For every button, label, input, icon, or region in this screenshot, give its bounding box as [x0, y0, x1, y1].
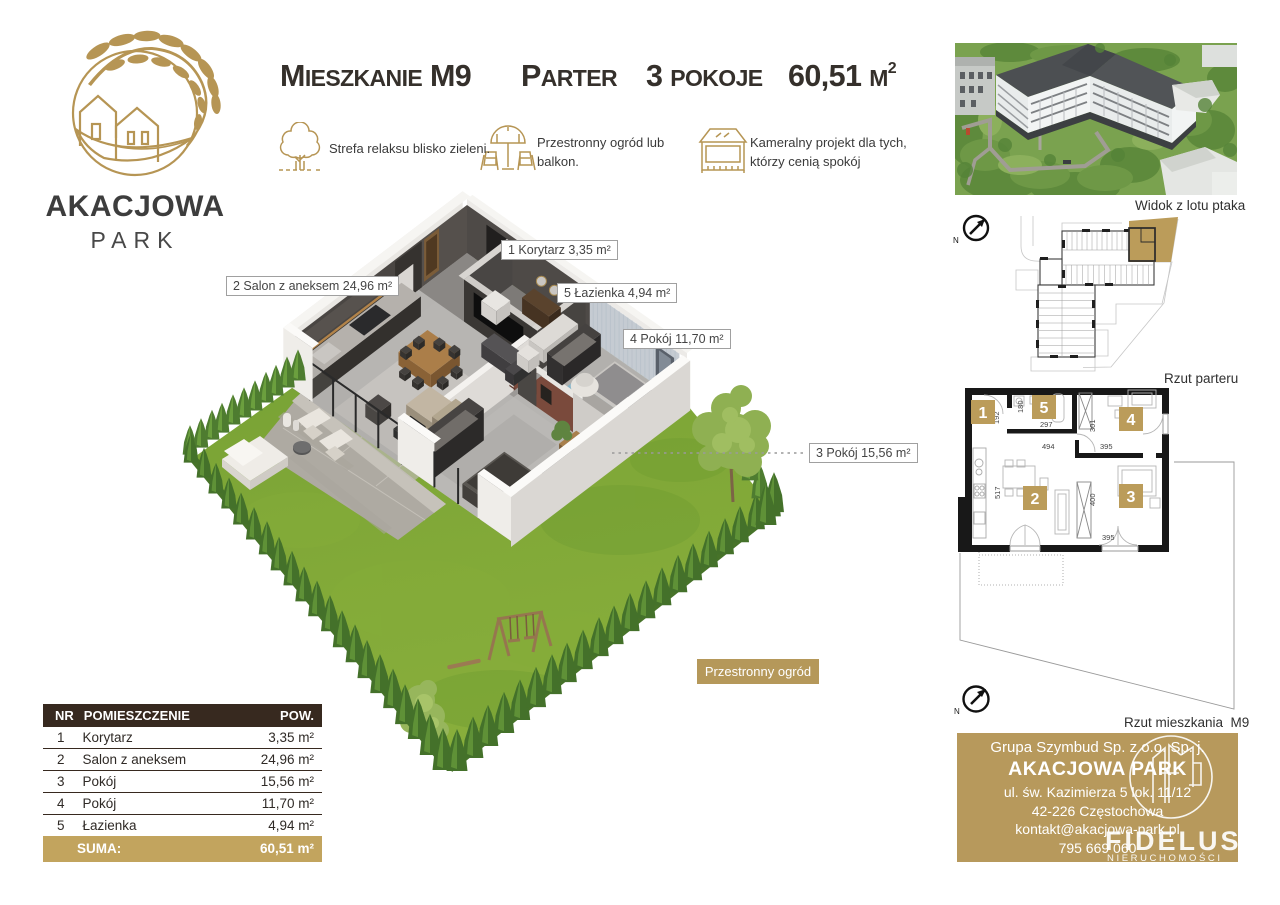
svg-text:4: 4	[1127, 412, 1136, 429]
svg-text:400: 400	[1088, 493, 1097, 506]
svg-text:297: 297	[1040, 420, 1053, 429]
svg-text:517: 517	[993, 486, 1002, 499]
svg-text:2: 2	[1031, 491, 1040, 508]
svg-text:3: 3	[1127, 489, 1136, 506]
svg-text:1: 1	[979, 405, 988, 422]
svg-text:395: 395	[1100, 442, 1113, 451]
svg-text:494: 494	[1042, 442, 1055, 451]
svg-text:FIDELUS: FIDELUS	[1105, 826, 1238, 856]
svg-text:301: 301	[1088, 419, 1097, 432]
svg-text:180: 180	[1016, 400, 1025, 413]
svg-text:NIERUCHOMOŚCI: NIERUCHOMOŚCI	[1107, 852, 1223, 862]
svg-text:5: 5	[1040, 400, 1049, 417]
svg-text:395: 395	[1102, 533, 1115, 542]
svg-text:N: N	[953, 236, 959, 245]
svg-text:N: N	[954, 707, 960, 716]
